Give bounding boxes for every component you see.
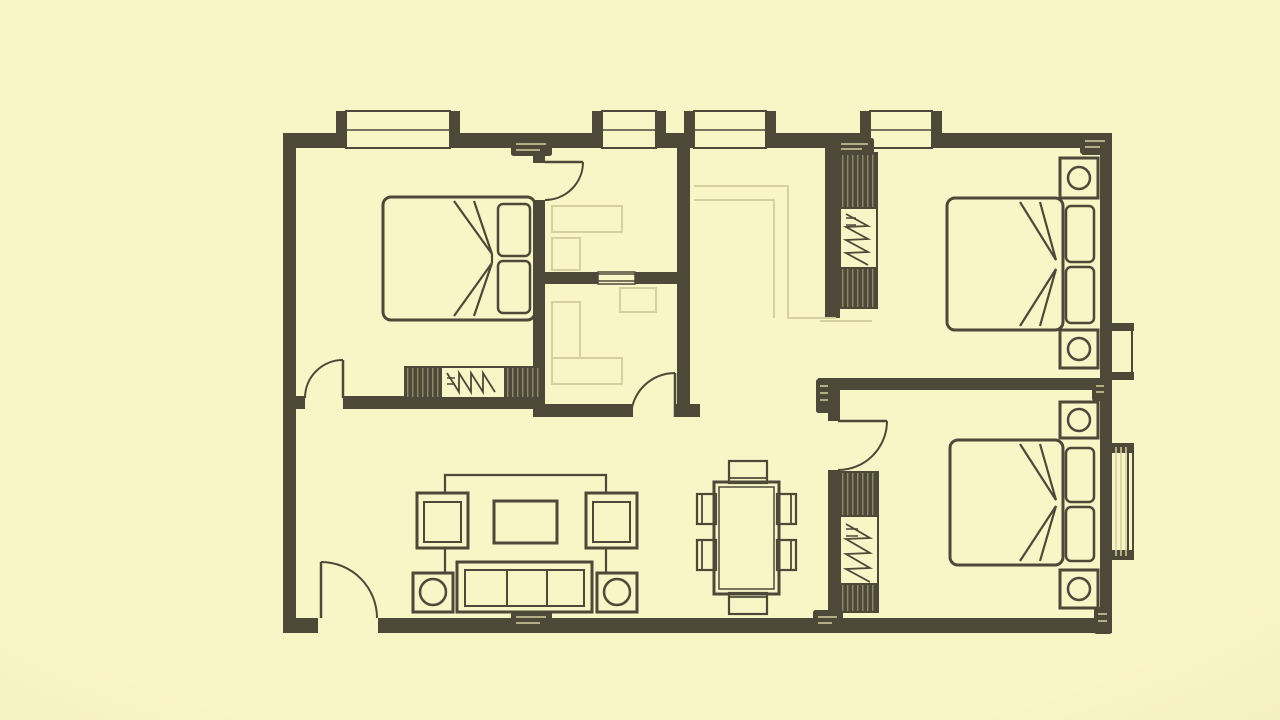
- dining-set: [697, 461, 796, 614]
- wardrobe-1-hanging-box: [441, 367, 505, 398]
- window-pier: [336, 111, 346, 148]
- dimension-mark-illegible: [1092, 379, 1109, 401]
- nightstand-lamp: [1068, 409, 1090, 431]
- openings: [598, 272, 635, 284]
- armchair-right-cushion: [593, 502, 630, 542]
- bed-1-pillow: [498, 204, 530, 256]
- sofa-set: [413, 475, 637, 612]
- bed-3-pillow: [1066, 448, 1094, 502]
- bed-1-blanket-fold: [454, 263, 492, 316]
- doors: [305, 162, 887, 618]
- bed-2-blanket-fold: [1020, 202, 1056, 260]
- bathroom1-door-swing-arc: [545, 162, 583, 200]
- dimension-mark-illegible: [816, 379, 833, 413]
- bathroom2-shower: [620, 288, 656, 312]
- bathroom1-toilet: [552, 238, 580, 270]
- wardrobes: [405, 153, 878, 612]
- kitchen-counter-outline: [694, 186, 836, 318]
- wall-bath-divider: [635, 272, 677, 284]
- bed-2-pillow: [1066, 206, 1094, 262]
- bed-1-pillow: [498, 261, 530, 313]
- coffee-table: [494, 501, 557, 543]
- bed-3-blanket-fold: [1020, 444, 1056, 500]
- dining-chair: [729, 461, 767, 483]
- window-pier: [932, 111, 942, 148]
- bedroom3-door-swing-arc: [838, 421, 887, 470]
- bathroom1-counter: [552, 206, 622, 232]
- floor-plan-drawing: [0, 0, 1280, 720]
- room-living-dining: [296, 409, 828, 618]
- dimension-mark-illegible: [511, 611, 552, 629]
- nightstand: [1060, 570, 1098, 608]
- wall-kitchen-left: [677, 148, 690, 417]
- bed-1-double: [383, 197, 535, 320]
- dining-table: [714, 482, 779, 594]
- wall-exterior-left: [283, 133, 296, 620]
- wardrobe-1-hatch: [505, 367, 543, 398]
- sofa-set-connector: [445, 475, 606, 493]
- window-pier: [592, 111, 602, 148]
- window-pier: [766, 111, 776, 148]
- dining-table-inner-edge: [719, 487, 774, 589]
- kitchen-counter-inner-line: [694, 200, 774, 318]
- nightstand-lamp: [1068, 338, 1090, 360]
- bed-2-pillow: [1066, 267, 1094, 323]
- wall-bedroom3-left: [828, 470, 840, 618]
- wardrobe-1-hatch: [405, 367, 441, 398]
- side-table-lamp: [604, 579, 630, 605]
- bay-windows: [1128, 325, 1133, 558]
- bathroom2-fixture: [552, 302, 580, 358]
- dimension-mark-illegible: [836, 138, 874, 155]
- window-pier: [656, 111, 666, 148]
- sofa-cushions: [465, 570, 584, 606]
- bathroom2-counter: [552, 358, 622, 384]
- side-table-lamp: [420, 579, 446, 605]
- entry-door-swing-arc: [321, 562, 377, 618]
- dimension-mark-illegible: [511, 138, 552, 156]
- dimension-mark-illegible: [1080, 134, 1111, 154]
- wardrobe-3-hatch: [840, 472, 878, 516]
- wardrobe-3-hatch: [840, 584, 878, 612]
- bed-3-blanket-fold: [1020, 506, 1056, 561]
- nightstand: [1060, 402, 1098, 438]
- wall-bedroom2-bedroom3-divider: [818, 378, 1112, 390]
- dimension-mark-illegible: [813, 610, 843, 631]
- bay-window-stub: [1112, 372, 1134, 380]
- bed-2-double: [947, 198, 1063, 330]
- floor-plan-image: Three-bedroom apartment floor plan drawi…: [0, 0, 1280, 720]
- bedroom1-door-swing-arc: [305, 360, 343, 398]
- wall-bath2-bottom: [545, 404, 633, 417]
- bed-3-pillow: [1066, 507, 1094, 561]
- wall-bath-divider: [545, 272, 598, 284]
- window-pier: [450, 111, 460, 148]
- bed-3-double: [950, 440, 1063, 565]
- wardrobe-2-hatch: [840, 268, 877, 308]
- wall-bedroom2-left: [825, 148, 840, 318]
- nightstand-lamp: [1068, 167, 1090, 189]
- bathroom2-door-swing-arc: [631, 373, 675, 417]
- room-hallway: [690, 318, 825, 390]
- wall-bedroom1-bottom: [283, 396, 305, 409]
- window-pier: [684, 111, 694, 148]
- armchair-left-cushion: [424, 502, 461, 542]
- wall-exterior-bottom: [283, 618, 318, 633]
- wardrobe-3-hanging-box: [840, 516, 878, 584]
- bed-2-blanket-fold: [1020, 269, 1056, 326]
- bay-window-stub: [1112, 323, 1134, 331]
- nightstand: [1060, 330, 1098, 368]
- nightstand: [1060, 158, 1098, 198]
- nightstand-lamp: [1068, 578, 1090, 600]
- wardrobe-2-hatch: [840, 153, 877, 208]
- bed-1-blanket-fold: [454, 201, 492, 254]
- wall-exterior-bottom: [378, 618, 1112, 633]
- room-bathroom-1: [545, 163, 677, 272]
- room-kitchen: [690, 148, 825, 378]
